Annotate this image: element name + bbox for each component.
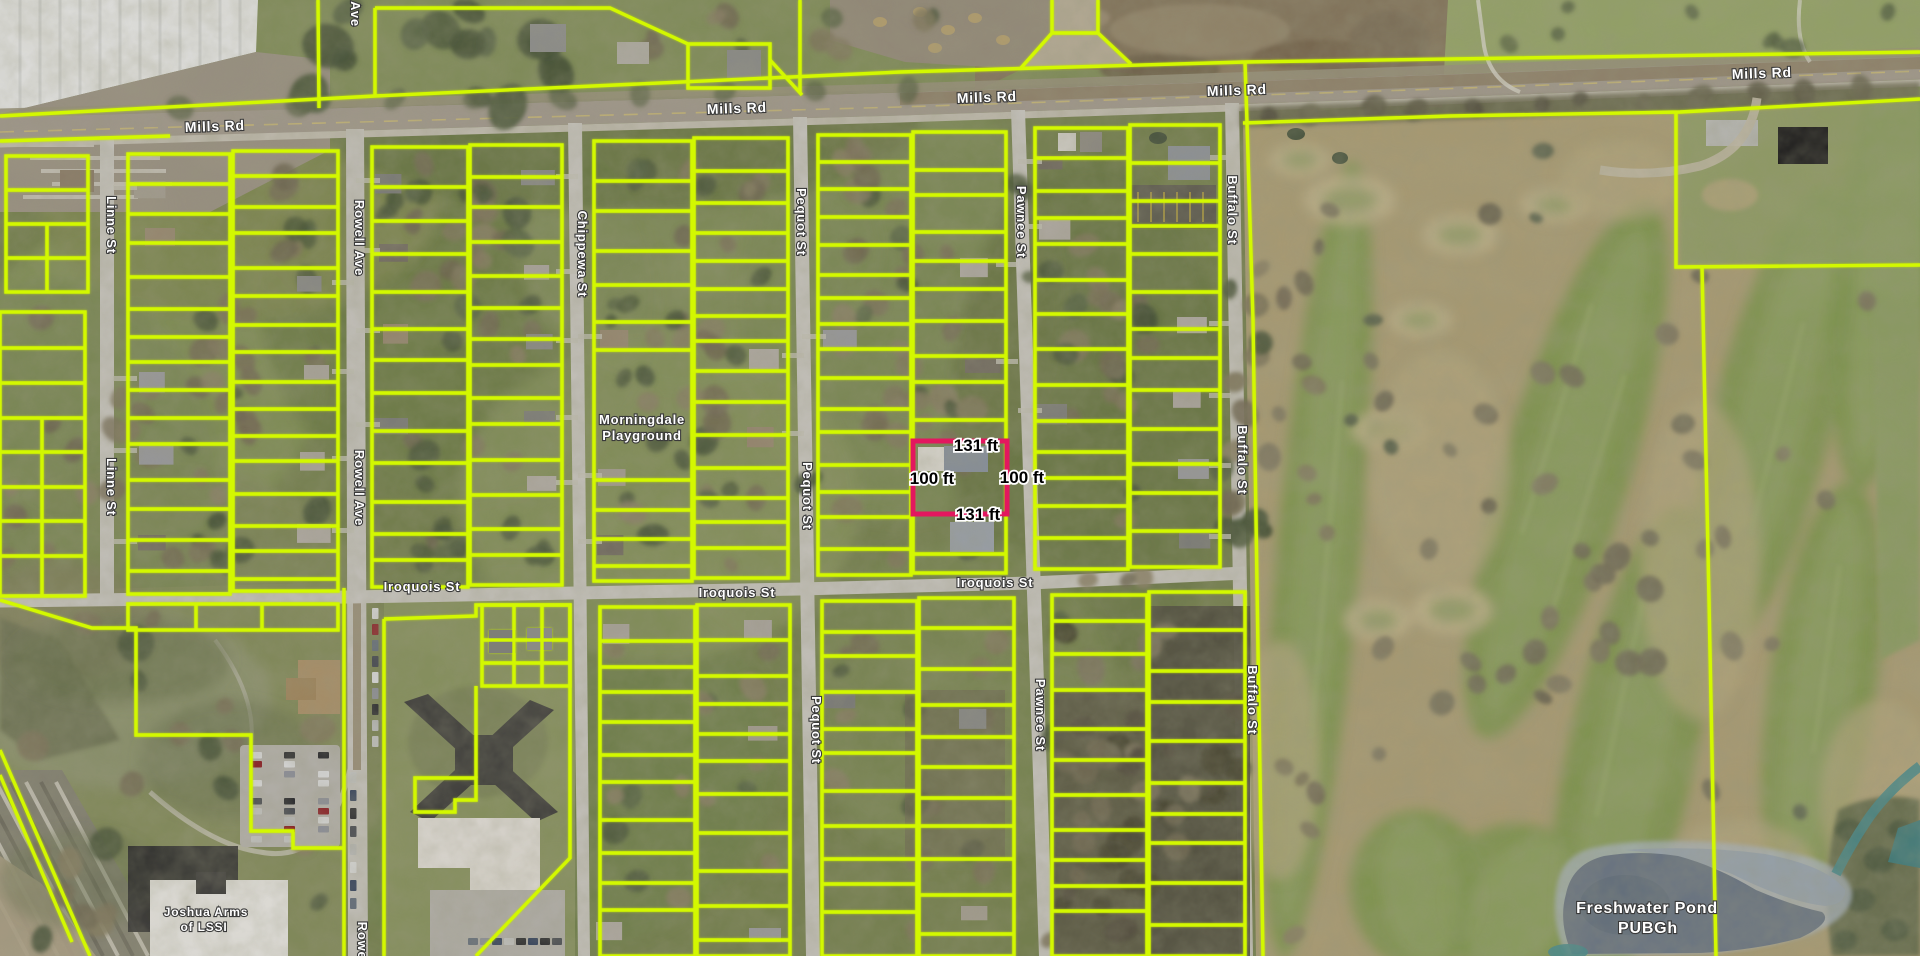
svg-text:Mills Rd: Mills Rd <box>185 117 246 135</box>
svg-text:Iroquois St: Iroquois St <box>699 585 776 600</box>
svg-text:Morningdale: Morningdale <box>599 412 685 427</box>
svg-text:Mills Rd: Mills Rd <box>707 99 768 117</box>
svg-text:Pequot St: Pequot St <box>794 188 809 256</box>
svg-text:Iroquois St: Iroquois St <box>384 579 461 594</box>
svg-text:131 ft: 131 ft <box>956 505 1001 524</box>
svg-text:Linne St: Linne St <box>104 458 119 516</box>
svg-text:Pawnee St: Pawnee St <box>1014 186 1029 258</box>
svg-text:Pequot St: Pequot St <box>800 462 815 530</box>
svg-text:Freshwater Pond: Freshwater Pond <box>1576 900 1718 917</box>
svg-text:Ave: Ave <box>348 1 363 27</box>
svg-text:Rowell Ave: Rowell Ave <box>352 200 367 276</box>
svg-text:100 ft: 100 ft <box>1000 468 1045 487</box>
svg-text:Mills Rd: Mills Rd <box>1207 81 1268 99</box>
svg-text:100 ft: 100 ft <box>910 469 955 488</box>
svg-text:Pequot St: Pequot St <box>809 696 824 764</box>
svg-text:Joshua Arms: Joshua Arms <box>164 905 248 919</box>
svg-text:PUBGh: PUBGh <box>1618 920 1678 937</box>
svg-text:Buffalo St: Buffalo St <box>1225 175 1240 244</box>
svg-text:Iroquois St: Iroquois St <box>957 575 1034 590</box>
svg-text:Playground: Playground <box>602 428 682 443</box>
svg-text:Rowell: Rowell <box>355 922 370 956</box>
svg-text:Chippewa St: Chippewa St <box>575 211 590 298</box>
svg-text:Buffalo St: Buffalo St <box>1245 665 1260 734</box>
svg-text:Mills Rd: Mills Rd <box>1732 64 1793 82</box>
svg-text:131 ft: 131 ft <box>954 436 999 455</box>
svg-text:Buffalo St: Buffalo St <box>1235 425 1250 494</box>
svg-text:of LSSI: of LSSI <box>181 920 228 934</box>
svg-text:Rowell Ave: Rowell Ave <box>352 450 367 526</box>
svg-text:Pawnee St: Pawnee St <box>1033 679 1048 751</box>
svg-text:Linne St: Linne St <box>104 196 119 254</box>
svg-text:Mills Rd: Mills Rd <box>957 88 1018 106</box>
